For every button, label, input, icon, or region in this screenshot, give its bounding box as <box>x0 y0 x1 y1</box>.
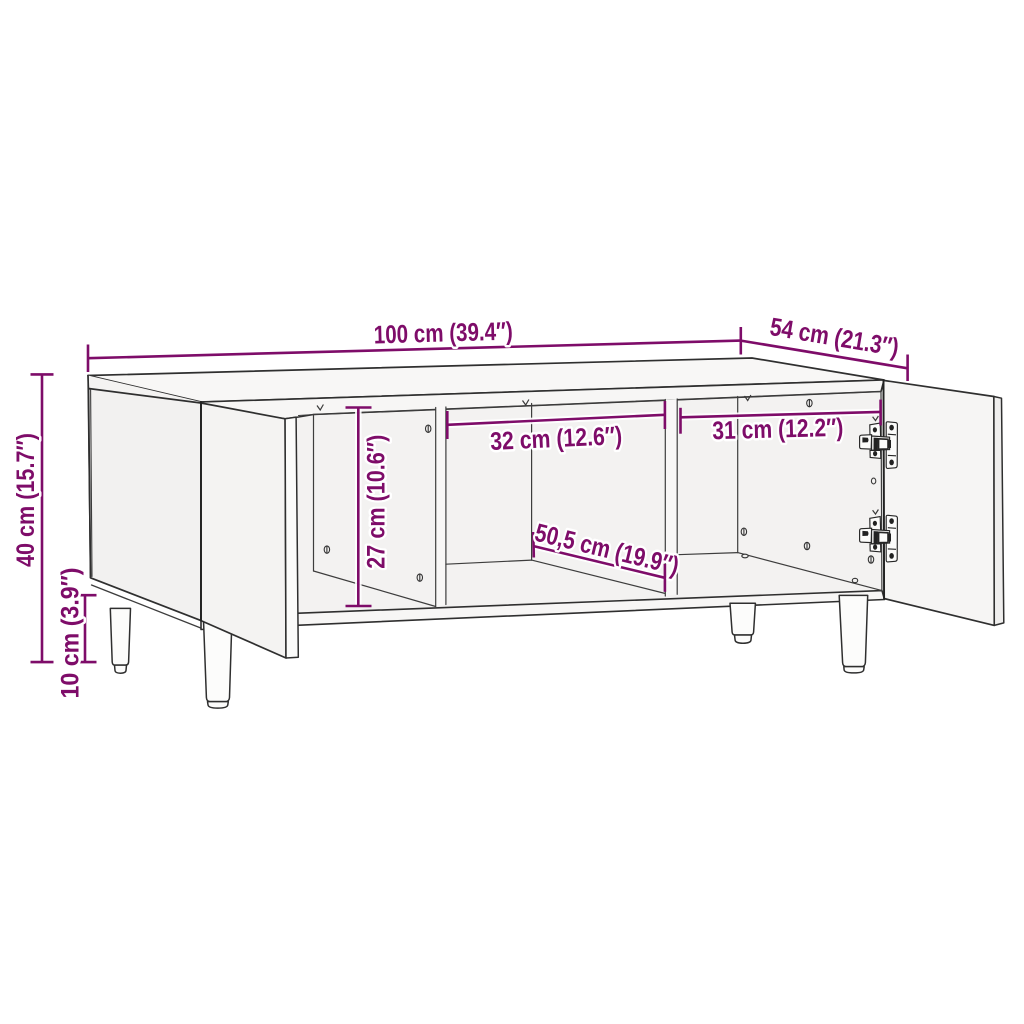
svg-text:100 cm (39.4″): 100 cm (39.4″) <box>373 318 513 350</box>
svg-text:40 cm (15.7″): 40 cm (15.7″) <box>12 433 40 567</box>
svg-text:27 cm (10.6″): 27 cm (10.6″) <box>363 435 391 569</box>
svg-text:32 cm (12.6″): 32 cm (12.6″) <box>490 422 623 456</box>
svg-text:31 cm (12.2″): 31 cm (12.2″) <box>712 414 844 445</box>
svg-text:10 cm (3.9″): 10 cm (3.9″) <box>57 568 85 699</box>
